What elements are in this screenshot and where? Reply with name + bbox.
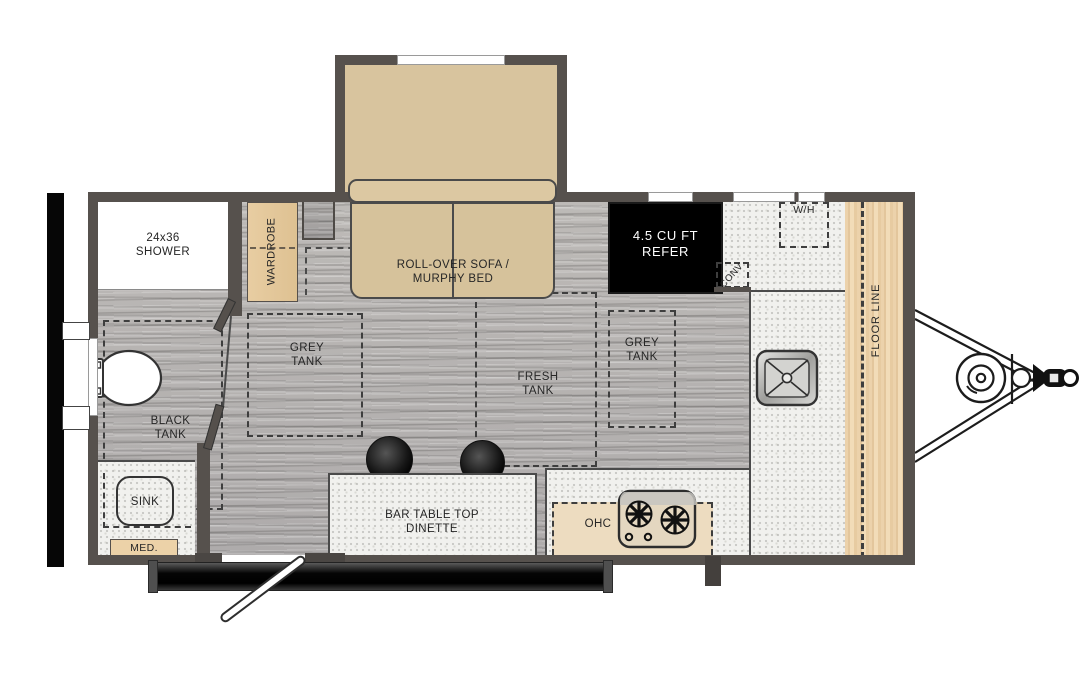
frame-end-cap [603,560,613,593]
trailer-frame-rail [150,562,613,591]
murphy-bed-back-cushion [348,179,557,203]
floorplan-canvas: 24x36 SHOWER WARDROBE ROLL-OVER SOFA / M… [0,0,1080,675]
tongue-a-frame-icon [915,294,1080,466]
window-opening [798,192,825,202]
rear-mount-bracket [62,406,90,430]
slideout-window-opening [397,55,505,65]
hitch-coupler-icon [1012,364,1078,392]
rear-window-opening [88,338,98,416]
grey-tank-outline-right [608,310,676,428]
convection-oven-zone [716,262,749,288]
toilet-icon [90,346,164,410]
cooktop-icon [616,487,698,550]
dinette-counter [328,473,537,558]
stabilizer-jack [705,556,721,586]
kitchen-counter-right [749,290,845,558]
grey-tank-outline-left [247,313,363,437]
fresh-tank-outline [475,292,597,467]
bath-partition-wall [197,443,210,557]
murphy-bed-center-line [452,202,454,299]
shower-room [98,202,230,290]
window-opening [648,192,693,202]
wall-top-left [88,192,335,202]
water-heater-zone [779,202,829,248]
window-opening [733,192,795,202]
wardrobe-cabinet [247,202,298,302]
lp-tank-icon [957,354,1005,402]
rear-bumper-bar [47,193,64,567]
refrigerator [608,202,723,294]
kitchen-sink-icon [754,348,820,408]
bed-step-cabinet [302,202,335,240]
convection-zone-base [714,287,751,292]
bath-sink-fixture [116,476,174,526]
rear-mount-bracket [62,322,90,340]
floor-line-strip [845,202,903,558]
frame-end-cap [148,560,158,593]
floor-line-dashed [861,202,864,558]
wall-right [903,192,915,565]
wardrobe-shelf-line [250,247,295,249]
